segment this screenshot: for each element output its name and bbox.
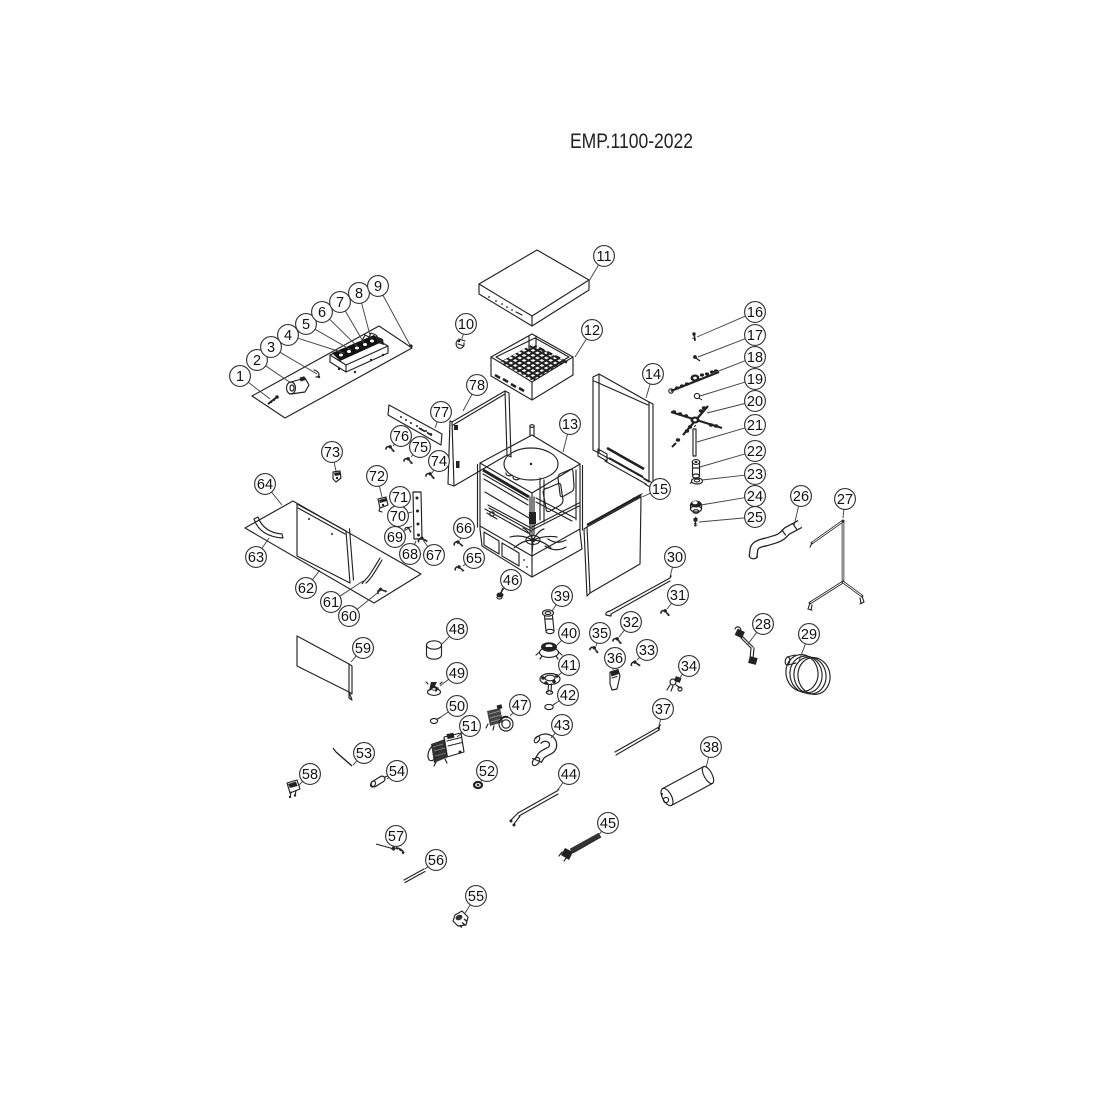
svg-text:47: 47: [512, 698, 528, 714]
svg-text:33: 33: [639, 643, 655, 659]
svg-text:2: 2: [253, 353, 261, 369]
svg-text:24: 24: [747, 489, 763, 505]
svg-text:75: 75: [412, 440, 428, 456]
svg-text:37: 37: [655, 702, 671, 718]
svg-text:17: 17: [747, 328, 763, 344]
svg-text:EMP.1100-2022: EMP.1100-2022: [570, 130, 693, 153]
svg-text:34: 34: [681, 659, 697, 675]
svg-text:14: 14: [645, 367, 661, 383]
svg-text:62: 62: [298, 581, 314, 597]
svg-text:43: 43: [554, 718, 570, 734]
svg-text:19: 19: [747, 372, 763, 388]
svg-text:60: 60: [341, 609, 357, 625]
svg-text:71: 71: [392, 490, 408, 506]
svg-text:9: 9: [374, 279, 382, 295]
svg-text:54: 54: [389, 764, 405, 780]
svg-text:3: 3: [267, 340, 275, 356]
svg-text:22: 22: [747, 444, 763, 460]
svg-text:77: 77: [433, 405, 449, 421]
svg-text:63: 63: [248, 550, 264, 566]
svg-text:74: 74: [431, 454, 447, 470]
svg-text:27: 27: [837, 492, 853, 508]
svg-text:76: 76: [393, 429, 409, 445]
svg-text:26: 26: [793, 489, 809, 505]
svg-text:16: 16: [747, 305, 763, 321]
svg-text:70: 70: [390, 509, 406, 525]
svg-text:30: 30: [667, 550, 683, 566]
svg-text:61: 61: [323, 595, 339, 611]
svg-text:72: 72: [369, 469, 385, 485]
svg-text:48: 48: [449, 622, 465, 638]
svg-text:31: 31: [670, 588, 686, 604]
svg-text:57: 57: [388, 829, 404, 845]
svg-text:32: 32: [623, 615, 639, 631]
svg-text:59: 59: [355, 641, 371, 657]
svg-text:8: 8: [355, 286, 363, 302]
svg-text:25: 25: [747, 510, 763, 526]
svg-text:20: 20: [747, 394, 763, 410]
svg-text:38: 38: [703, 740, 719, 756]
svg-text:18: 18: [747, 350, 763, 366]
svg-text:35: 35: [592, 626, 608, 642]
svg-text:44: 44: [561, 767, 577, 783]
svg-text:21: 21: [747, 418, 763, 434]
svg-text:36: 36: [607, 651, 623, 667]
svg-text:39: 39: [554, 589, 570, 605]
svg-text:41: 41: [561, 658, 577, 674]
svg-text:13: 13: [562, 417, 578, 433]
svg-text:73: 73: [324, 445, 340, 461]
svg-text:42: 42: [560, 688, 576, 704]
svg-text:29: 29: [801, 627, 817, 643]
svg-text:15: 15: [652, 482, 668, 498]
svg-text:6: 6: [318, 305, 326, 321]
svg-text:65: 65: [466, 551, 482, 567]
svg-text:1: 1: [236, 369, 244, 385]
svg-text:69: 69: [387, 530, 403, 546]
svg-text:10: 10: [458, 317, 474, 333]
svg-text:56: 56: [428, 853, 444, 869]
svg-text:4: 4: [284, 328, 292, 344]
svg-text:55: 55: [468, 889, 484, 905]
svg-text:11: 11: [596, 249, 611, 265]
svg-text:66: 66: [456, 521, 472, 537]
svg-text:12: 12: [584, 323, 600, 339]
svg-text:49: 49: [449, 666, 465, 682]
svg-text:51: 51: [462, 719, 478, 735]
svg-text:7: 7: [336, 295, 344, 311]
svg-text:28: 28: [755, 617, 771, 633]
svg-text:53: 53: [356, 746, 372, 762]
svg-text:50: 50: [449, 699, 465, 715]
svg-text:78: 78: [469, 378, 485, 394]
svg-text:64: 64: [257, 477, 273, 493]
svg-text:40: 40: [561, 626, 577, 642]
svg-text:23: 23: [747, 467, 763, 483]
svg-text:46: 46: [503, 573, 519, 589]
svg-text:5: 5: [302, 317, 310, 333]
svg-text:45: 45: [600, 816, 616, 832]
svg-text:58: 58: [302, 767, 318, 783]
svg-text:52: 52: [479, 764, 495, 780]
svg-text:67: 67: [426, 548, 442, 564]
svg-text:68: 68: [402, 547, 418, 563]
